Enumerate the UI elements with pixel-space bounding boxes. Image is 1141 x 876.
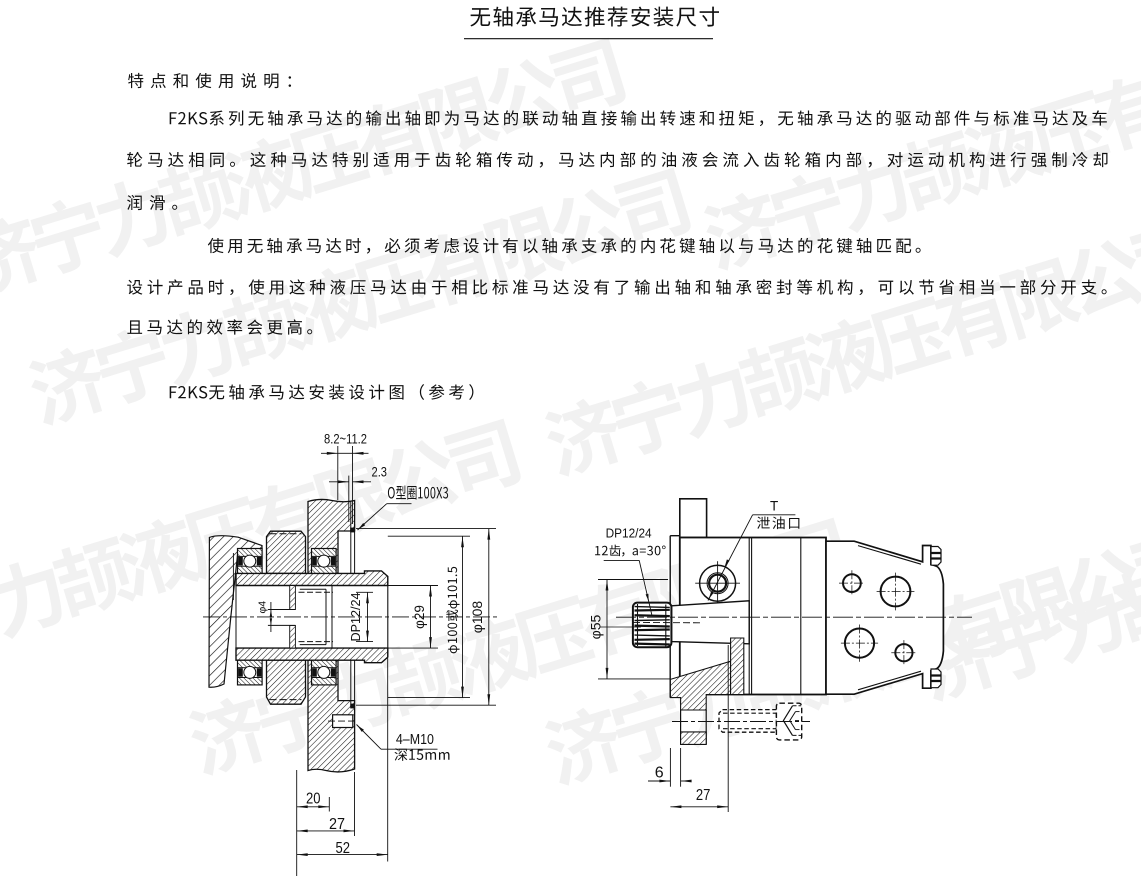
svg-text:27: 27 (329, 816, 345, 833)
svg-text:20: 20 (306, 790, 321, 807)
svg-text:4–M10: 4–M10 (396, 732, 434, 748)
svg-text:52: 52 (336, 840, 351, 857)
svg-text:2.3: 2.3 (372, 465, 388, 480)
svg-text:T: T (770, 499, 778, 514)
svg-text:6: 6 (655, 764, 664, 781)
svg-text:27: 27 (696, 787, 711, 804)
svg-text:φ4: φ4 (257, 601, 269, 614)
svg-text:DP12/24: DP12/24 (606, 525, 652, 540)
svg-text:φ55: φ55 (588, 614, 604, 639)
svg-text:8.2~11.2: 8.2~11.2 (324, 432, 367, 447)
